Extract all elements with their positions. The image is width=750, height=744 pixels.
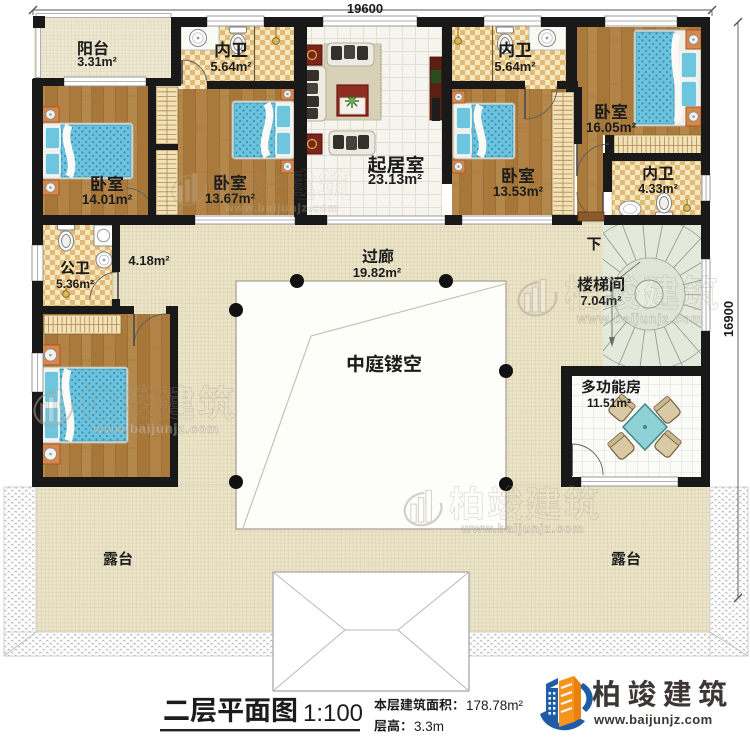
svg-text:16.05m²: 16.05m² bbox=[586, 120, 637, 135]
svg-text:23.13m²: 23.13m² bbox=[368, 172, 422, 188]
svg-text:5.64m²: 5.64m² bbox=[494, 59, 536, 74]
svg-text:13.53m²: 13.53m² bbox=[493, 184, 544, 199]
svg-text:4.18m²: 4.18m² bbox=[128, 253, 170, 268]
svg-text:19.82m²: 19.82m² bbox=[353, 265, 402, 280]
svg-text:5.64m²: 5.64m² bbox=[210, 59, 252, 74]
svg-text:www.baijunjz.com: www.baijunjz.com bbox=[593, 712, 713, 727]
svg-text:19600: 19600 bbox=[347, 1, 383, 16]
svg-text:1:100: 1:100 bbox=[303, 700, 363, 727]
svg-text:www.baijunjz.com: www.baijunjz.com bbox=[461, 522, 585, 536]
svg-text:3.3m: 3.3m bbox=[414, 719, 444, 734]
svg-text:www.baijunjz.com: www.baijunjz.com bbox=[576, 311, 703, 326]
svg-text:7.04m²: 7.04m² bbox=[580, 293, 622, 308]
svg-text:www.baijunjz.com: www.baijunjz.com bbox=[224, 203, 339, 215]
svg-text:11.51m²: 11.51m² bbox=[587, 396, 631, 410]
svg-text:14.01m²: 14.01m² bbox=[82, 192, 133, 207]
svg-text:16900: 16900 bbox=[721, 301, 736, 337]
svg-text:3.31m²: 3.31m² bbox=[77, 55, 117, 69]
svg-text:www.baijunjz.com: www.baijunjz.com bbox=[92, 421, 219, 436]
svg-text:178.78m²: 178.78m² bbox=[466, 698, 524, 713]
svg-text:5.36m²: 5.36m² bbox=[56, 277, 94, 291]
svg-text:4.33m²: 4.33m² bbox=[638, 182, 678, 196]
